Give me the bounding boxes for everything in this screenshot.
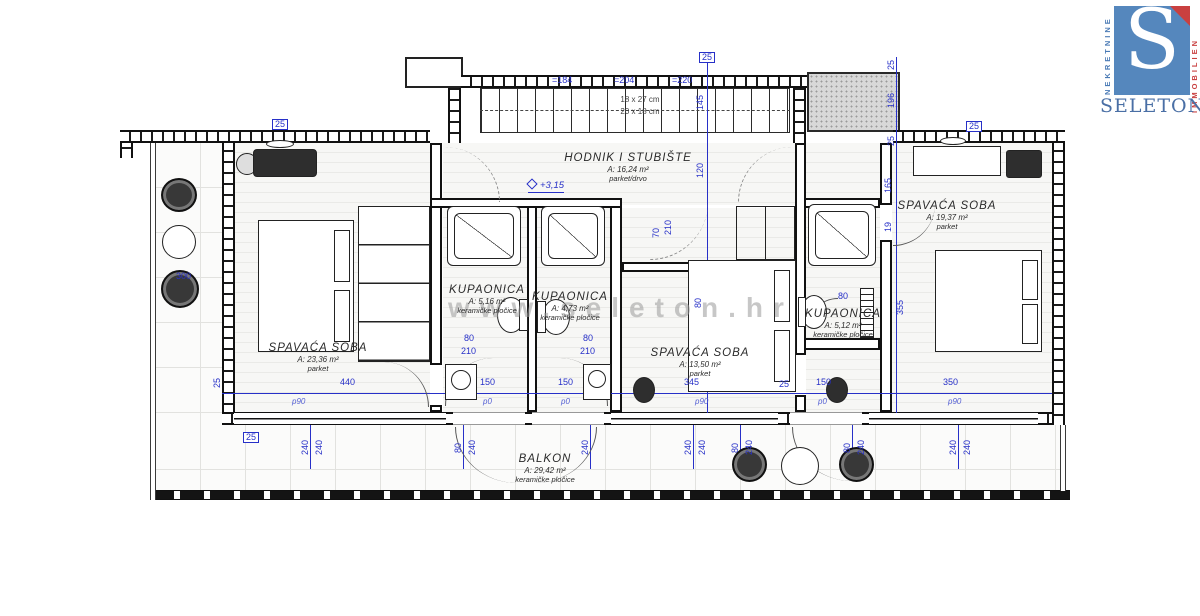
- window: [611, 412, 778, 425]
- room-floor-type: keramičke pločice: [449, 306, 525, 315]
- dresser: [253, 149, 317, 177]
- dimension-line: [693, 425, 694, 469]
- armchair: [161, 178, 197, 212]
- pillow: [1022, 260, 1038, 300]
- window: [234, 412, 446, 425]
- dimension-line: [310, 425, 311, 469]
- wall-segment: [778, 412, 790, 425]
- dimension-label: 80: [838, 292, 848, 301]
- room-name: HODNIK I STUBIŠTE: [564, 152, 692, 164]
- dimension-label: 80: [694, 298, 703, 308]
- dimension-label: 240: [698, 440, 707, 455]
- dimension-label: 120: [696, 163, 705, 178]
- pillow: [774, 330, 790, 382]
- pillow: [1022, 304, 1038, 344]
- dimension-label: 165: [884, 178, 893, 193]
- dimension-label: p90: [948, 398, 961, 406]
- lamp: [266, 140, 294, 148]
- dimension-label: 25: [887, 136, 896, 146]
- room-name: KUPAONICA: [532, 291, 608, 303]
- room-label: SPAVAĆA SOBAA: 19,37 m²parket: [898, 200, 997, 231]
- dimension-label: 240: [468, 440, 477, 455]
- dimension-label: p90: [695, 398, 708, 406]
- dimension-label: 240: [684, 440, 693, 455]
- room-name: SPAVAĆA SOBA: [269, 342, 368, 354]
- room-area: A: 5,16 m²: [449, 297, 525, 306]
- dimension-label: =184: [552, 76, 572, 85]
- stair-landing: [405, 57, 463, 88]
- wall-segment: [1052, 143, 1065, 425]
- tv: [1006, 150, 1042, 178]
- dimension-label: 80: [464, 334, 474, 343]
- wall-segment: [430, 143, 442, 365]
- room-label: BALKONA: 29,42 m²keramičke pločice: [515, 453, 575, 484]
- room-floor-type: parket: [898, 222, 997, 231]
- wall-segment: [880, 143, 892, 205]
- logo-triangle-icon: [1170, 6, 1190, 26]
- table: [162, 225, 196, 259]
- level-marker: +3,15: [528, 180, 564, 193]
- dimension-label: p0: [483, 398, 492, 406]
- room-name: BALKON: [515, 453, 575, 465]
- wall-segment: [120, 143, 133, 158]
- balcony-door: [532, 412, 604, 425]
- balcony-door: [790, 412, 862, 425]
- wall-segment: [622, 262, 690, 272]
- pillow: [334, 230, 350, 282]
- dimension-label: 150: [558, 378, 573, 387]
- dimension-label: 19: [884, 222, 893, 232]
- dimension-label: 240: [963, 440, 972, 455]
- wall-segment: [604, 412, 611, 425]
- shower-tray: [548, 213, 598, 259]
- dimension-label: 196: [887, 93, 896, 108]
- room-area: A: 23,36 m²: [269, 355, 368, 364]
- room-floor-type: keramičke pločice: [532, 313, 608, 322]
- balcony-railing-end: [1060, 425, 1066, 491]
- dimension-label: 345: [684, 378, 699, 387]
- dimension-label: 25: [779, 380, 789, 389]
- room-floor-type: keramičke pločice: [805, 330, 881, 339]
- room-name: KUPAONICA: [449, 284, 525, 296]
- dimension-label: 210: [664, 220, 673, 235]
- wall-segment: [795, 395, 806, 412]
- wall-segment: [525, 412, 532, 425]
- dimension-label: p0: [818, 398, 827, 406]
- dimension-label: 150: [816, 378, 831, 387]
- dimension-label: 240: [745, 440, 754, 455]
- room-name: SPAVAĆA SOBA: [898, 200, 997, 212]
- terrace-railing: [150, 143, 156, 500]
- dimension-label: 25: [699, 52, 715, 63]
- floor-balcony: [156, 425, 1066, 490]
- stair-dimensions-note: 18 x 27 cm: [620, 95, 659, 104]
- dimension-line: [958, 425, 959, 469]
- dimension-label: 25: [272, 119, 288, 130]
- room-label: KUPAONICAA: 5,12 m²keramičke pločice: [805, 308, 881, 339]
- room-floor-type: parket: [651, 369, 750, 378]
- room-area: A: 5,12 m²: [805, 321, 881, 330]
- floor-plan-image: 18 x 27 cm 20 x 18 cm +3,15 www.seleton.…: [0, 0, 1200, 616]
- logo-left-text: NEKRETNINE: [1103, 6, 1112, 95]
- wardrobe: [358, 206, 430, 362]
- dimension-label: 80: [583, 334, 593, 343]
- room-floor-type: parket/drvo: [564, 174, 692, 183]
- dimension-label: 150: [480, 378, 495, 387]
- wall-segment: [446, 412, 453, 425]
- logo-name: SELETON: [1100, 95, 1194, 117]
- dimension-label: p90: [292, 398, 305, 406]
- balcony-railing: [150, 490, 1070, 500]
- dimension-label: 240: [301, 440, 310, 455]
- room-area: A: 4,73 m²: [532, 304, 608, 313]
- room-name: KUPAONICA: [805, 308, 881, 320]
- floor-plan: 18 x 27 cm 20 x 18 cm +3,15 www.seleton.…: [0, 0, 1200, 616]
- dimension-label: 210: [580, 347, 595, 356]
- table: [781, 447, 819, 485]
- dimension-label: 240: [949, 440, 958, 455]
- shower-tray: [454, 213, 514, 259]
- room-area: A: 16,24 m²: [564, 165, 692, 174]
- dimension-label: 145: [696, 95, 705, 110]
- dimension-label: 440: [340, 378, 355, 387]
- wall-segment: [800, 338, 880, 350]
- dimension-label: 355: [896, 300, 905, 315]
- lamp: [940, 137, 966, 145]
- dimension-label: 25: [966, 121, 982, 132]
- wall-segment: [222, 412, 234, 425]
- washing-machine-drum: [451, 370, 471, 390]
- room-area: A: 29,42 m²: [515, 466, 575, 475]
- dimension-label: 350: [943, 378, 958, 387]
- dimension-label: 70: [652, 228, 661, 238]
- seleton-logo: NEKRETNINE S IMMOBILIEN SELETON: [1100, 3, 1198, 121]
- closet: [736, 206, 795, 260]
- dimension-label: =220: [672, 76, 692, 85]
- room-floor-type: keramičke pločice: [515, 475, 575, 484]
- fixture: [633, 377, 655, 403]
- wall-segment: [880, 240, 892, 412]
- dimension-label: 80: [454, 443, 463, 453]
- room-label: KUPAONICAA: 5,16 m²keramičke pločice: [449, 284, 525, 315]
- dimension-label: 80: [731, 443, 740, 453]
- room-label: SPAVAĆA SOBAA: 13,50 m²parket: [651, 347, 750, 378]
- stair-dimensions-note: 20 x 18 cm: [620, 107, 659, 116]
- wall-segment: [222, 143, 235, 425]
- dimension-label: =204: [614, 76, 634, 85]
- room-label: SPAVAĆA SOBAA: 23,36 m²parket: [269, 342, 368, 373]
- level-value: +3,15: [540, 180, 564, 191]
- balcony-door: [453, 412, 525, 425]
- room-area: A: 13,50 m²: [651, 360, 750, 369]
- wall-segment: [1038, 412, 1052, 425]
- pillow: [334, 290, 350, 342]
- wall-segment: [862, 412, 869, 425]
- dimension-label: 300: [176, 272, 191, 281]
- window: [869, 412, 1038, 425]
- dimension-label: 240: [857, 440, 866, 455]
- dimension-label: 25: [213, 378, 222, 388]
- room-label: KUPAONICAA: 4,73 m²keramičke pločice: [532, 291, 608, 322]
- wall-segment: [430, 405, 442, 412]
- dimension-label: 240: [581, 440, 590, 455]
- dresser: [913, 146, 1001, 176]
- dimension-label: 80: [843, 443, 852, 453]
- level-diamond-icon: [526, 178, 537, 189]
- room-floor-type: parket: [269, 364, 368, 373]
- dimension-label: 25: [243, 432, 259, 443]
- dimension-label: 210: [461, 347, 476, 356]
- dimension-label: 25: [887, 60, 896, 70]
- sink: [588, 370, 606, 388]
- logo-box: S: [1114, 6, 1190, 95]
- dimension-label: p0: [561, 398, 570, 406]
- wall-segment: [448, 88, 461, 143]
- room-area: A: 19,37 m²: [898, 213, 997, 222]
- wall-segment: [793, 88, 806, 143]
- room-label: HODNIK I STUBIŠTEA: 16,24 m²parket/drvo: [564, 152, 692, 183]
- room-name: SPAVAĆA SOBA: [651, 347, 750, 359]
- shower-tray: [815, 211, 869, 259]
- dimension-label: 240: [315, 440, 324, 455]
